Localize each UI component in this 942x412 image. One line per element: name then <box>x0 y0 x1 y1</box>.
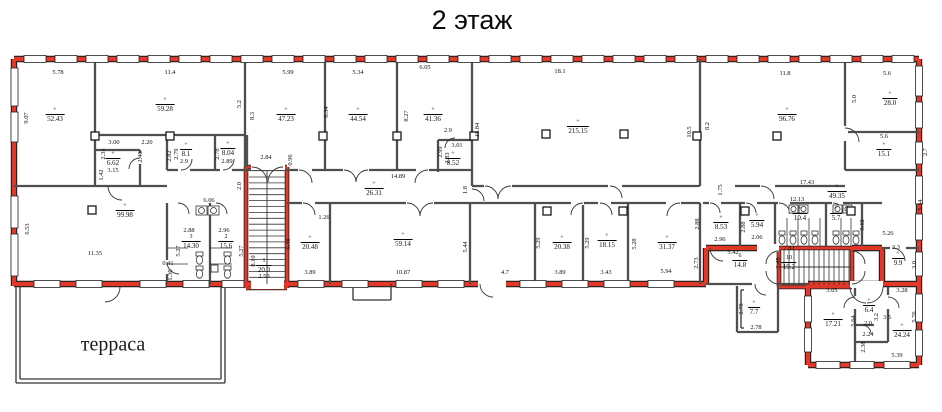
window <box>916 252 923 276</box>
window <box>365 56 387 63</box>
toilet-icon <box>853 236 859 244</box>
door-arc <box>108 186 122 200</box>
window <box>916 294 923 322</box>
duct-box <box>211 265 218 272</box>
window <box>768 56 790 63</box>
door-arc <box>105 287 120 302</box>
window <box>342 281 368 288</box>
column <box>470 132 478 140</box>
window <box>520 281 546 288</box>
window <box>11 234 18 276</box>
window <box>604 281 630 288</box>
toilet-icon <box>812 231 818 235</box>
window <box>303 56 325 63</box>
toilet-icon <box>779 231 785 235</box>
window <box>438 281 464 288</box>
window <box>916 330 923 356</box>
window <box>916 66 923 96</box>
window <box>396 281 422 288</box>
column <box>620 130 628 138</box>
window <box>117 56 139 63</box>
toilet-icon <box>833 231 839 235</box>
window <box>805 296 812 322</box>
window <box>427 56 449 63</box>
toilet-icon <box>224 270 230 278</box>
toilet-icon <box>790 236 796 244</box>
column <box>693 132 701 140</box>
window <box>916 142 923 164</box>
toilet-icon <box>843 236 849 244</box>
window <box>562 281 588 288</box>
door-arc <box>867 287 883 303</box>
door-opening <box>852 296 858 309</box>
column <box>319 132 327 140</box>
window <box>489 56 511 63</box>
column <box>619 207 627 215</box>
window <box>737 56 759 63</box>
window <box>582 56 604 63</box>
window <box>520 56 542 63</box>
toilet-icon <box>196 270 202 278</box>
column <box>542 130 550 138</box>
window <box>850 362 874 369</box>
terrace-label: терраса <box>81 334 146 357</box>
window <box>210 56 232 63</box>
window <box>11 68 18 106</box>
door-opening <box>251 280 284 289</box>
window <box>648 281 674 288</box>
toilet-icon <box>196 252 203 256</box>
toilet-icon <box>196 256 202 264</box>
toilet-icon <box>224 256 230 264</box>
window <box>916 176 923 204</box>
door-opening <box>478 280 506 289</box>
toilet-icon <box>843 231 849 235</box>
door-opening <box>343 167 369 172</box>
column <box>88 206 96 214</box>
window <box>183 281 209 288</box>
toilet-icon <box>779 236 785 244</box>
column <box>166 132 174 140</box>
window <box>458 56 480 63</box>
column <box>91 132 99 140</box>
door-opening <box>697 187 703 201</box>
window <box>816 362 840 369</box>
floor-plan-page: 2 этаж +52.43+59.28+47.23+44.54+41.36+8.… <box>0 0 942 412</box>
window <box>24 56 46 63</box>
toilet-icon <box>801 236 807 244</box>
window <box>805 328 812 352</box>
window <box>861 56 883 63</box>
window <box>884 362 910 369</box>
window <box>334 56 356 63</box>
window <box>86 56 108 63</box>
window <box>396 56 418 63</box>
toilet-icon <box>853 231 859 235</box>
window <box>76 281 102 288</box>
window <box>140 281 166 288</box>
window <box>148 56 170 63</box>
column <box>847 207 855 215</box>
window <box>675 56 697 63</box>
column <box>543 207 551 215</box>
toilet-icon <box>812 236 818 244</box>
window <box>916 214 923 240</box>
window <box>34 281 60 288</box>
window <box>551 56 573 63</box>
door-arc <box>862 325 871 334</box>
window <box>55 56 77 63</box>
toilet-icon <box>833 236 839 244</box>
window <box>11 196 18 228</box>
toilet-icon <box>801 231 807 235</box>
window <box>179 56 201 63</box>
door-opening <box>406 200 434 205</box>
toilet-icon <box>224 252 231 256</box>
window <box>222 281 244 288</box>
window <box>298 281 324 288</box>
door-opening <box>469 188 475 201</box>
window <box>892 56 914 63</box>
column <box>741 207 749 215</box>
window <box>11 112 18 142</box>
door-opening <box>484 183 512 188</box>
window <box>644 56 666 63</box>
toilet-icon <box>790 231 796 235</box>
window <box>241 56 263 63</box>
door-opening <box>757 244 779 252</box>
door-opening <box>850 281 883 288</box>
window <box>830 56 852 63</box>
window <box>272 56 294 63</box>
window <box>799 56 821 63</box>
window <box>706 56 728 63</box>
door-opening <box>753 280 776 289</box>
column <box>393 132 401 140</box>
window <box>916 102 923 128</box>
column <box>773 132 781 140</box>
window <box>613 56 635 63</box>
